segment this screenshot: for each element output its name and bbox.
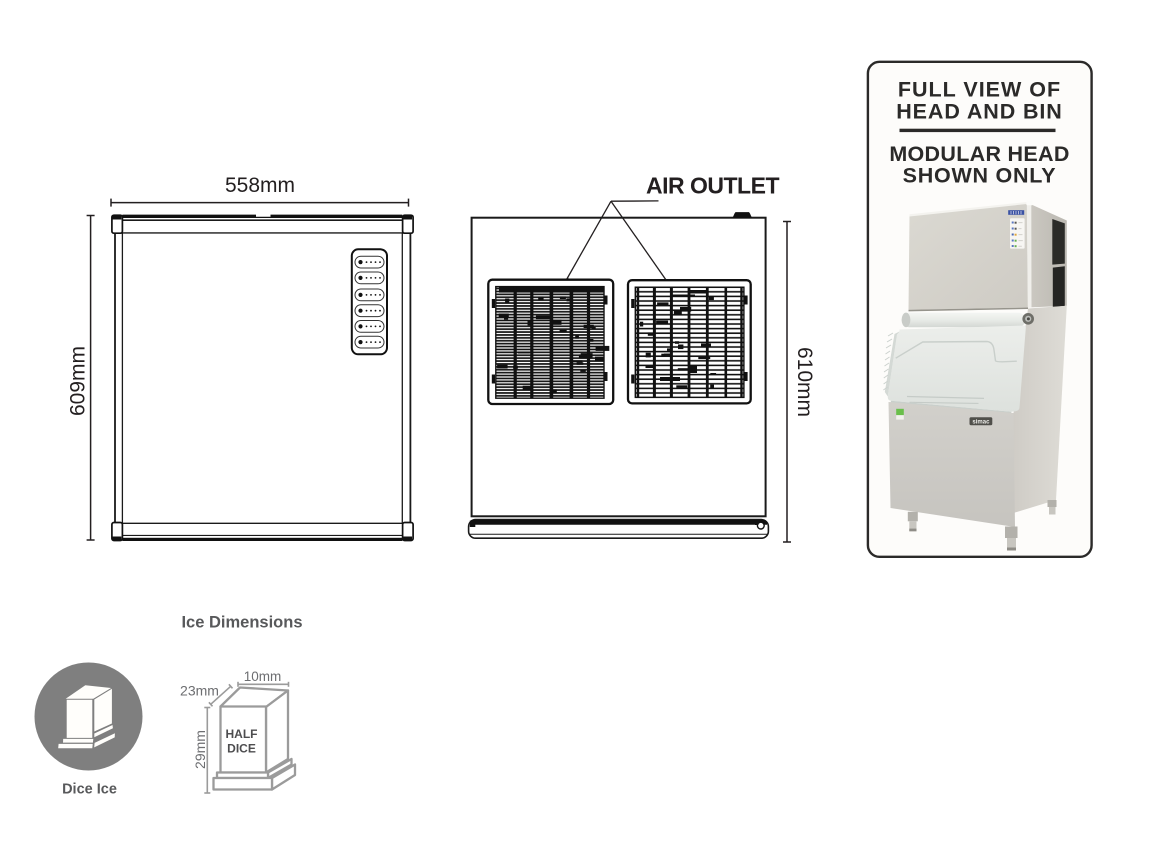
svg-text:MODULAR HEAD: MODULAR HEAD [889, 142, 1069, 166]
svg-text:AIR OUTLET: AIR OUTLET [646, 173, 779, 199]
svg-text:simac: simac [972, 420, 990, 426]
svg-text:HEAD AND BIN: HEAD AND BIN [896, 100, 1062, 124]
svg-text:SHOWN ONLY: SHOWN ONLY [903, 164, 1057, 188]
svg-text:FULL VIEW OF: FULL VIEW OF [898, 78, 1061, 102]
svg-text:Dice Ice: Dice Ice [62, 782, 117, 798]
svg-text:610mm: 610mm [793, 347, 816, 417]
svg-text:558mm: 558mm [225, 174, 295, 197]
svg-text:HALF: HALF [226, 727, 258, 741]
svg-text:DICE: DICE [227, 742, 256, 756]
svg-text:29mm: 29mm [192, 730, 208, 769]
svg-text:23mm: 23mm [180, 683, 219, 699]
svg-text:Ice Dimensions: Ice Dimensions [181, 614, 302, 632]
svg-text:609mm: 609mm [67, 346, 90, 416]
svg-text:10mm: 10mm [244, 669, 282, 684]
